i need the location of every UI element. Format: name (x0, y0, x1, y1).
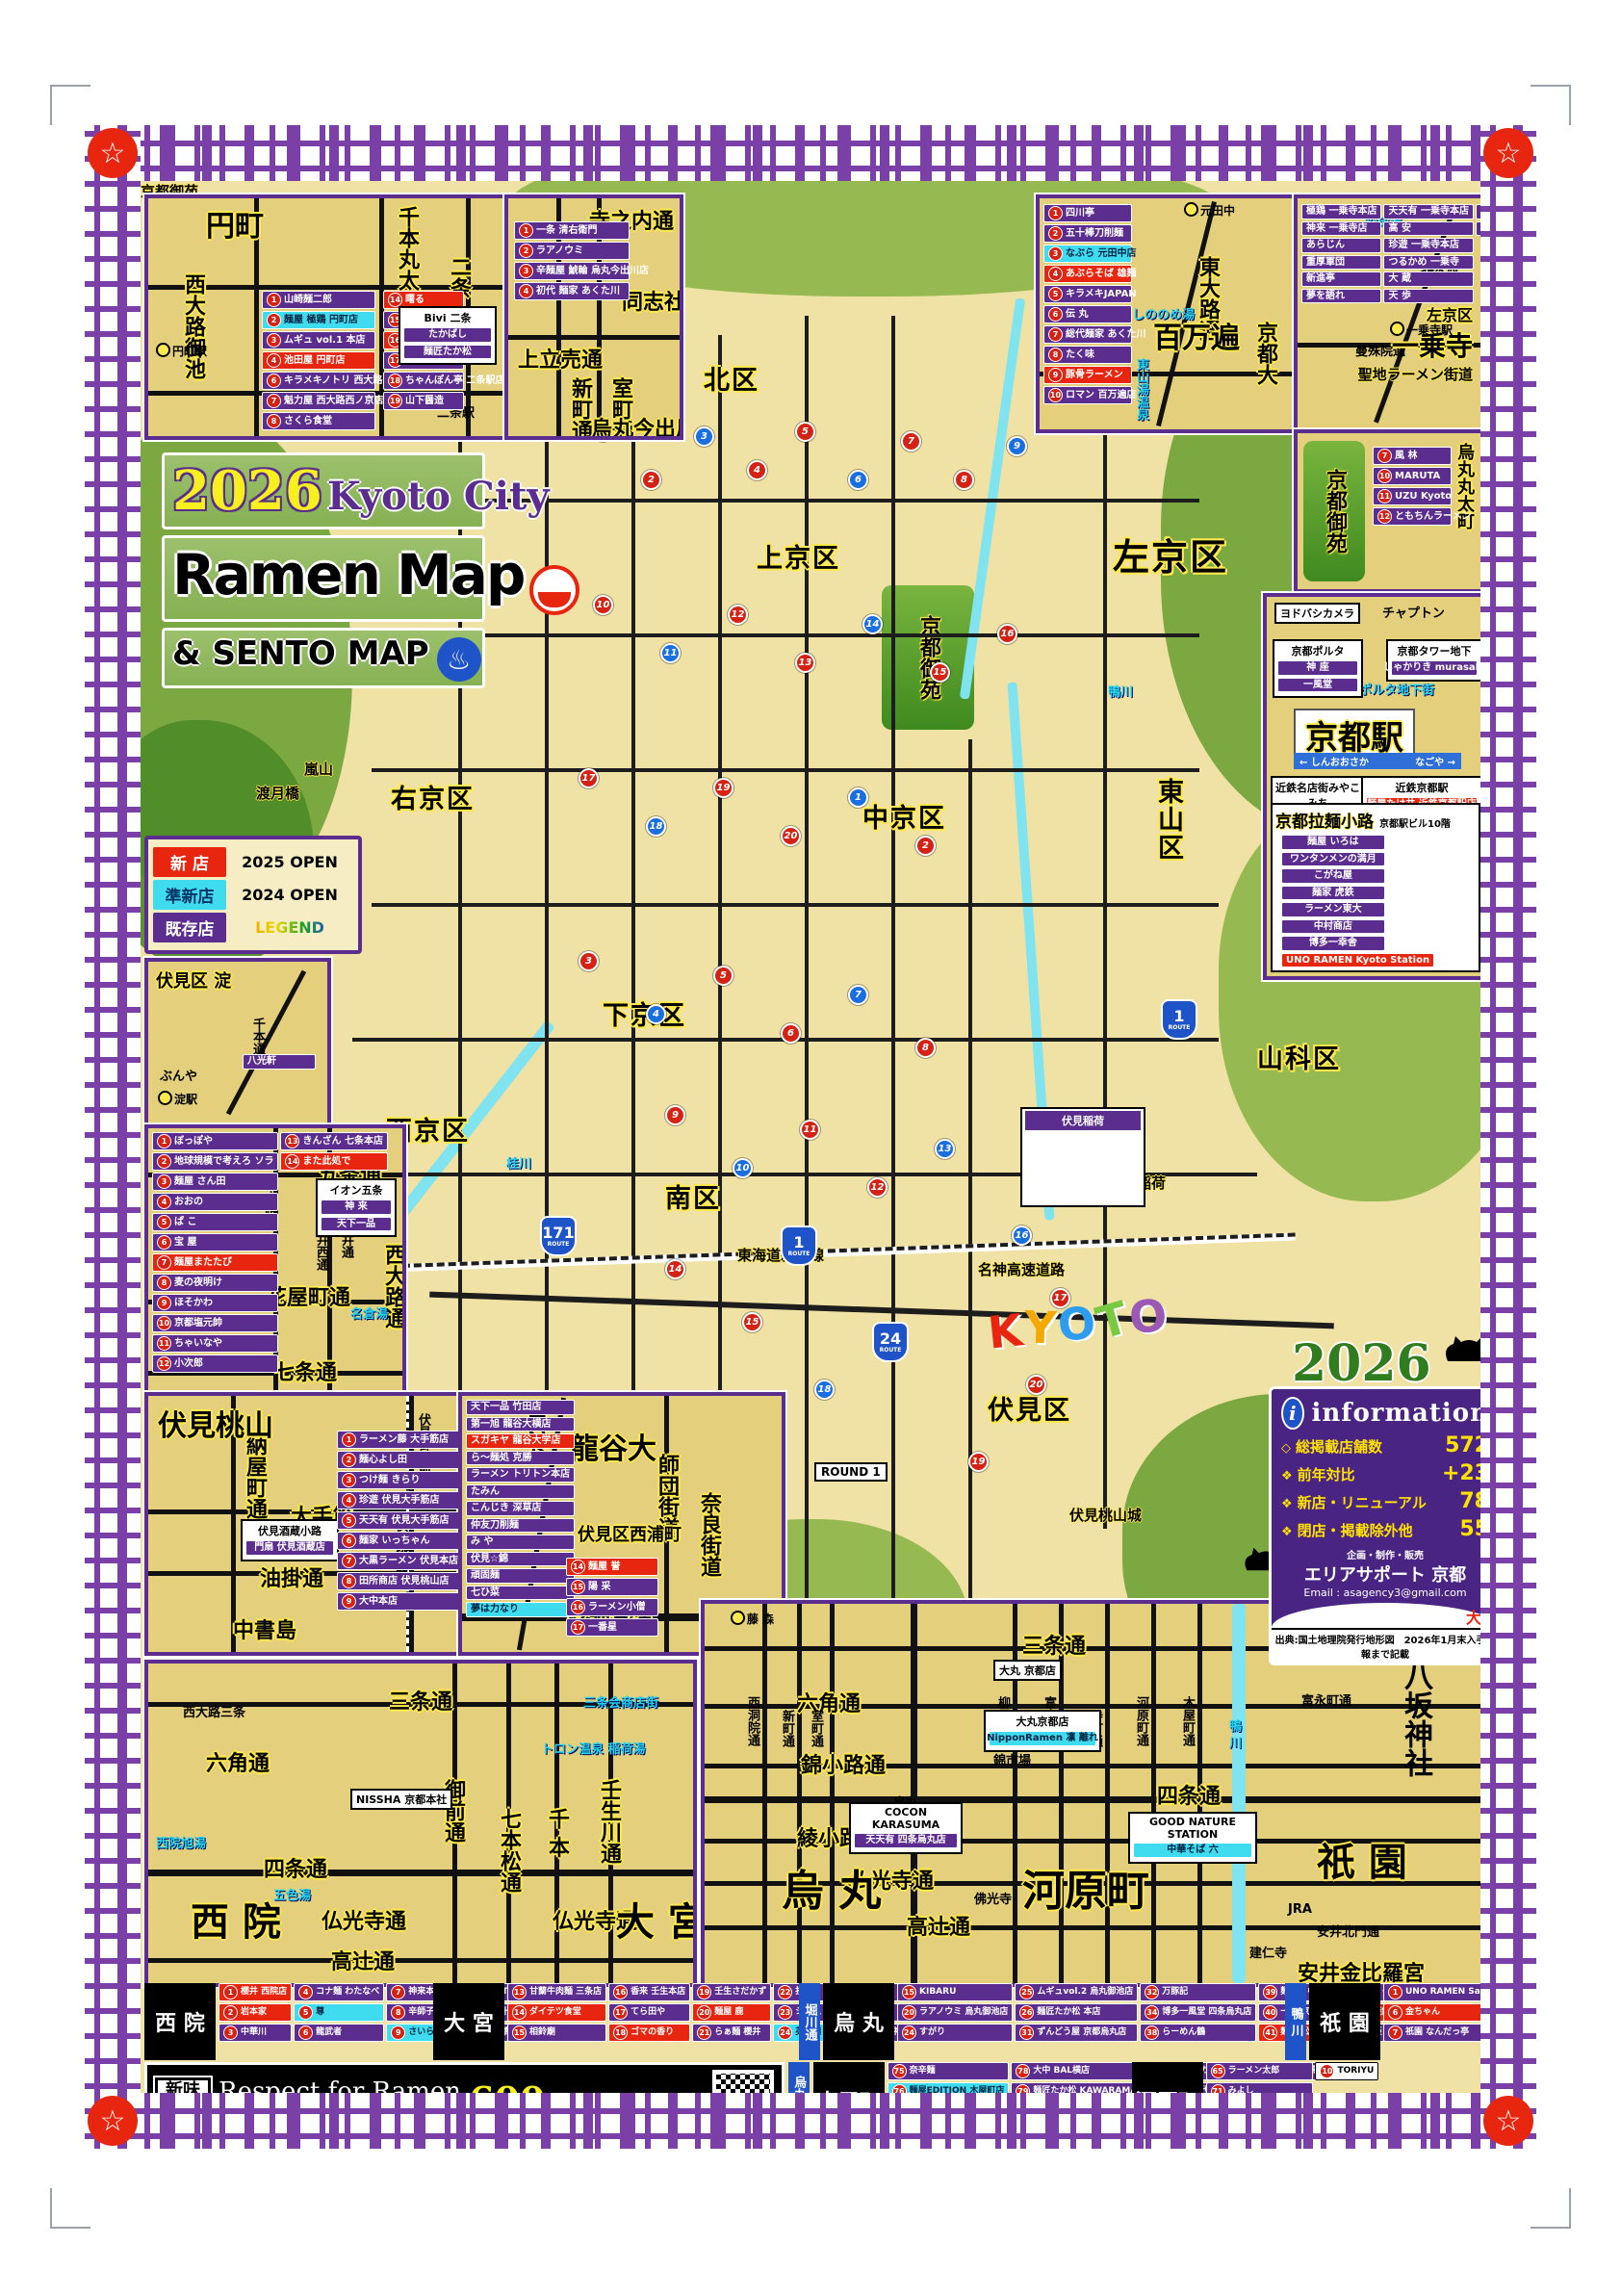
kamigyo-shops: 1一条 清右衛門2ラアノウミ3辛麺屋 鯱輪 烏丸今出川店4初代 麺家 あくた川 (514, 221, 630, 300)
kyoto-ramen-koji-box: 京都拉麺小路京都駅ビル10階 麺屋 いろはワンタンメンの満月こがね屋麺家 虎鉄ラ… (1271, 803, 1480, 972)
shop-chip[interactable]: 2五十棒刀削麺 (1043, 224, 1132, 243)
map-marker[interactable]: 17 (579, 768, 599, 788)
yodo-station: 淀駅 (158, 1091, 197, 1107)
street-label: 高辻通 (907, 1910, 970, 1941)
shop-chip[interactable]: 八光軒 (243, 1054, 316, 1070)
street-label: 安井北門通 (1317, 1922, 1379, 1940)
shop-chip[interactable]: み や (466, 1535, 575, 1550)
street-label: 六角通 (206, 1746, 270, 1777)
kyoto-tower-box: 京都タワー地下 しゃかりき murasaki (1386, 639, 1480, 682)
shop-chip[interactable]: 第一旭 龍谷大横店 (466, 1417, 575, 1432)
shop-chip[interactable]: 19壬生さだかず (692, 1983, 771, 2001)
legend-row-existing: 既存店 LEGEND (153, 913, 353, 942)
shop-chip[interactable]: 3なぶら 元田中店 (1043, 245, 1132, 263)
skyline-deco: 大 (1272, 1603, 1480, 1628)
shop-chip[interactable]: 11UZU Kyoto (1373, 487, 1452, 505)
aeon-gojo-box: イオン五条 神 来天下一品 (316, 1178, 397, 1237)
poster-root: ☆ ☆ ☆ ☆ 京都御苑 北区 (0, 0, 1621, 2296)
shop-chip[interactable]: 2ラアノウミ (514, 242, 630, 260)
kawaramachi-label: 河原町 (1022, 1867, 1149, 1916)
shop-chip[interactable]: 3つけ麺 きらり (337, 1471, 462, 1489)
street-label: 三条通 (1022, 1629, 1086, 1660)
shop-chip[interactable]: 2麺心よし田 (337, 1451, 462, 1469)
shop-chip[interactable]: 14ダイテツ食堂 (507, 2003, 606, 2022)
legend-box: 新 店 2025 OPEN 準新店 2024 OPEN 既存店 LEGEND (144, 836, 362, 954)
banner-slogan: Respect for Ramen (219, 2077, 461, 2094)
street-label: 名倉湯 (350, 1303, 388, 1322)
shop-chip[interactable]: 24すがり (897, 2024, 1013, 2042)
meander-border-top (85, 125, 1536, 181)
shop-chip[interactable]: 2地球規模で考えろ ソラ (152, 1152, 278, 1171)
map-marker[interactable]: 18 (814, 1380, 835, 1400)
shop-chip[interactable]: 15陽 采 (566, 1578, 658, 1596)
shop-chip[interactable]: ら〜麺処 克勝 (466, 1451, 575, 1466)
shop-chip[interactable]: 中村商店 (1281, 919, 1385, 935)
shop-chip[interactable]: 10京都塩元帥 (152, 1314, 278, 1332)
shop-chip[interactable]: 2岩本家 (219, 2003, 292, 2022)
street-label: NISSHA 京都本社 (350, 1789, 452, 1810)
street-label: 佛光寺 (974, 1889, 1012, 1907)
shop-chip[interactable]: 71みよし (1206, 2082, 1314, 2093)
shop-chip[interactable]: 65ラーメン太郎 (1206, 2062, 1314, 2080)
shop-chip[interactable]: 門扇 伏見酒蔵店 (245, 1540, 334, 1556)
shop-chip[interactable]: つるかめ 一乗寺 (1383, 255, 1473, 271)
shop-chip[interactable]: 16ラーメン小僧 (566, 1598, 658, 1616)
cocon-karasuma-box: COCON KARASUMA 天天有 四条烏丸店 (849, 1802, 963, 1854)
shop-chip[interactable]: 18ゴマの香り (608, 2024, 690, 2042)
ryukoku-shops-col1: 天下一品 竹田店第一旭 龍谷大横店スガキヤ 龍谷大学店ら〜麺処 克勝ラーメン ト… (466, 1400, 558, 1648)
shop-chip[interactable]: 3ムギュ vol.1 本店 (262, 331, 375, 349)
street-label: トロン温泉 稲荷湯 (541, 1739, 646, 1757)
shop-chip[interactable]: 7総代麺家 あくた川 (1043, 325, 1132, 344)
map-marker[interactable]: 2 (915, 836, 936, 856)
shop-chip[interactable]: 6麺家 いっちゃん (337, 1532, 462, 1550)
shop-chip[interactable]: 1四川亭 (1043, 204, 1132, 222)
title-row-main: Ramen Map (162, 535, 485, 622)
band-header: 大 宮 (433, 1983, 504, 2060)
shop-chip[interactable]: 1UNO RAMEN Sanjo (1383, 1983, 1480, 2001)
credits: 企画・制作・販売 エリアサポート 京都 Email : asagency3@gm… (1281, 1547, 1480, 1599)
inset-ryukoku: 龍谷大 伏見区西浦町 藤 森 R24師団街道奈良街道名神高速 天下一品 竹田店第… (458, 1392, 785, 1656)
karasuma-street-strip: 烏丸通り (788, 2062, 810, 2093)
map-marker[interactable]: 13 (935, 1139, 955, 1159)
map-marker[interactable]: 11 (800, 1120, 820, 1140)
shop-chip[interactable]: 1一条 清右衛門 (514, 221, 630, 240)
inset-fushimi-momoyama: 伏見桃山 納屋町通大手筋油掛通中書島伏見御陵前駅伏見桃山駅 伏見酒蔵小路 門扇 … (144, 1392, 462, 1656)
inset-hyakumanben: 百万遍 元田中 東大路通京都大しののめ湯東山湯温泉 1四川亭2五十棒刀削麺3なぶ… (1036, 194, 1298, 433)
shop-chip[interactable]: 6金ちゃん (1383, 2003, 1480, 2022)
crop-mark (50, 85, 90, 125)
shop-chip[interactable]: 12小次郎 (152, 1354, 278, 1373)
shop-chip[interactable]: 17てら田や (608, 2003, 690, 2022)
inset-saiin-omiya: 西 院 大 宮 三条通六角通四条通仏光寺通高辻通御前通七本松通千 本壬生川通西大… (144, 1660, 697, 1987)
ichijoji-subtitle: 聖地ラーメン街道 (1358, 366, 1473, 383)
info-title: information (1312, 1399, 1481, 1428)
motodanaka-station: 元田中 (1184, 202, 1235, 219)
shop-chip[interactable]: 1ぼっぽや (152, 1132, 278, 1150)
street-label: 上立売通 (518, 343, 603, 374)
banner-price: 600 (469, 2084, 545, 2093)
shop-chip[interactable]: 七ひ菜 (466, 1586, 575, 1601)
inset-gojo: 五条通花屋町通七条通西小路通佐井西通佐井通西大路通名倉湯 イオン五条 神 来天下… (144, 1124, 406, 1396)
map-marker[interactable]: 3 (694, 426, 714, 447)
shop-chip[interactable]: 天下一品 竹田店 (466, 1400, 575, 1415)
shop-chip[interactable]: 高 安 (1383, 221, 1473, 237)
street-label: 千本通 (248, 1018, 267, 1055)
shop-chip[interactable]: 4あぶらそば 雄麺 (1043, 265, 1132, 283)
shop-chip[interactable]: ワンタンメンの満月 (1281, 852, 1385, 867)
momoyama-shops: 1ラーメン藤 大手筋店2麺心よし田3つけ麺 きらり4珍遊 伏見大手筋店5天天有 … (337, 1431, 450, 1642)
qr-code[interactable] (712, 2070, 774, 2093)
shop-chip[interactable]: 20ラアノウミ 烏丸御池店 (897, 2003, 1013, 2022)
bivi-nijo-box: Bivi 二条 たかばし麺匠たか松 (399, 306, 497, 365)
shop-chip[interactable]: 19山下醤造 (383, 392, 464, 410)
star-badge-icon: ☆ (1483, 2096, 1533, 2146)
sale-banner: 新味発見 Respect for Ramen 高精度・熱烈編集！完全保存版 60… (144, 2062, 785, 2093)
street-label: 建仁寺 (1249, 1943, 1287, 1961)
street-label: 西大路三条 (183, 1702, 245, 1720)
street-label: 納屋町通 (239, 1434, 270, 1519)
title-row-year: 2026 Kyoto City (162, 452, 485, 529)
inset-title: 龍谷大 (570, 1432, 656, 1466)
shop-chip[interactable]: 15相鈴廟 (507, 2024, 606, 2042)
map-marker[interactable]: 12 (867, 1177, 888, 1198)
shop-chip[interactable]: 天下一品 (321, 1217, 392, 1232)
shop-chip[interactable]: 2麺屋 極鶏 円町店 (262, 311, 375, 329)
street-label: 三条会商店街 (583, 1692, 658, 1711)
kamogawa-strip: 鴨 川 (1285, 1983, 1306, 2060)
shop-chip[interactable]: 4池田屋 円町店 (262, 351, 375, 370)
inset-karasuma-imadegawa: 寺之内通上立売通新町通室町通同志社大烏丸今出川 1一条 清右衛門2ラアノウミ3辛… (504, 194, 683, 440)
legend-chip-existing: 既存店 (153, 913, 226, 942)
hyakumanben-shops: 1四川亭2五十棒刀削麺3なぶら 元田中店4あぶらそば 雄麺5キラメキJAPAN6… (1043, 204, 1132, 404)
street-label: チャプトン (1382, 603, 1445, 621)
shop-chip[interactable]: 神 座 (1277, 660, 1358, 676)
map-marker[interactable]: 9 (1007, 436, 1027, 456)
inset-kyoto-station: ヨドバシカメラチャプトンポルタ地下街室町通新町通東寺通大正湯 京都ポルタ 神 座… (1263, 593, 1480, 980)
shop-chip[interactable]: 15KIBARU (897, 1983, 1013, 2001)
shop-chip[interactable]: 13きんざん 七条本店 (280, 1132, 387, 1150)
legend-chip-new: 新 店 (153, 847, 226, 877)
kyoto-porta-box: 京都ポルタ 神 座一風堂 (1273, 639, 1363, 698)
shop-chip[interactable]: 10ロマン 百万遍店 (1043, 386, 1132, 404)
band-header: 西 院 (144, 1983, 216, 2060)
band-header: 祇 園 (1309, 1983, 1380, 2060)
map-marker[interactable]: 8 (915, 1038, 936, 1058)
star-badge-icon: ☆ (88, 128, 138, 178)
shop-chip[interactable]: 夢を語れ (1301, 289, 1381, 304)
shop-chip[interactable]: 麺匠たか松 (403, 345, 492, 360)
shop-chip[interactable]: 7祇園 なんだっ亭 (1383, 2024, 1480, 2042)
map-marker[interactable]: 7 (848, 985, 868, 1005)
shop-chip[interactable]: 天 歩 (1383, 289, 1473, 304)
map-marker[interactable]: 19 (713, 778, 733, 798)
omiya-label: 大 宮 (616, 1900, 697, 1945)
shop-chip[interactable]: 14また此処で (280, 1152, 387, 1171)
fujinomori-station: 藤 森 (731, 1611, 774, 1627)
legend-row-new: 新 店 2025 OPEN (153, 847, 353, 877)
info-row-total: ◇総掲載店舗数572 (1281, 1433, 1480, 1458)
inset-yodo: 伏見区 淀 淀駅 千本通ぶんや 八光軒 (144, 958, 331, 1127)
map-marker[interactable]: 16 (1012, 1225, 1032, 1246)
shop-chip[interactable]: 25ムギュvol.2 烏丸御池店 (1015, 1983, 1138, 2001)
shop-chip[interactable]: 20麺屋 鹿 (692, 2003, 771, 2022)
street-label: JRA (1288, 1902, 1312, 1917)
map-marker[interactable]: 18 (646, 816, 666, 837)
shop-chip[interactable]: あらじん (1301, 238, 1381, 253)
shop-chip[interactable]: 34博多一風堂 四条烏丸店 (1140, 2003, 1256, 2022)
shop-chip[interactable]: 4コナ麺 わたなべ (294, 1983, 384, 2001)
title-main: Ramen Map (172, 542, 524, 607)
legend-chip-seminew: 準新店 (153, 880, 226, 910)
horikawa-street-strip: 堀川通 (799, 1983, 820, 2060)
street-label: 河原町通 (1132, 1696, 1150, 1746)
map-marker[interactable]: 6 (848, 470, 868, 490)
deco-year: 2026 (1292, 1334, 1431, 1393)
shop-chip[interactable]: 6龍武者 (294, 2024, 384, 2042)
inset-title: 円町 (206, 210, 264, 244)
shop-chip[interactable]: 21らぁ麺 櫻井 (692, 2024, 771, 2042)
ramen-bowl-icon (529, 565, 579, 615)
shop-chip[interactable]: 驚麺屋 (1476, 221, 1480, 237)
shop-chip[interactable]: 38らーめん鶴 (1140, 2024, 1256, 2042)
map-marker[interactable]: 15 (742, 1312, 762, 1332)
marutamachi-shops: 7風 林10MARUTA11UZU Kyoto12ともちんラーメン (1373, 447, 1452, 526)
street-label: 四条通 (264, 1852, 327, 1883)
street-label: 西大路御池 (177, 273, 208, 379)
shop-chip[interactable]: 天天有 一乗寺本店 (1383, 204, 1473, 219)
shop-chip[interactable]: 仲友刀削麺 (466, 1518, 575, 1534)
shop-chip[interactable]: 18ちゃんぽん亭 二条駅店 (383, 372, 464, 390)
map-marker[interactable]: 3 (579, 951, 599, 971)
street-label: 室町通 (807, 1710, 825, 1747)
street-label: 奈良街道 (693, 1492, 724, 1577)
inset-enmachi: 円町 円町駅 西大路御池千本丸太町二条二条駅 1山崎麺二郎2麺屋 極鶏 円町店3… (144, 194, 506, 440)
shop-chip[interactable]: 麺屋 いろは (1281, 835, 1385, 850)
shop-chip[interactable]: 5尊 (294, 2003, 384, 2022)
shop-chip[interactable]: たかばし (403, 327, 492, 343)
shop-chip[interactable]: 博多一幸舎 (1281, 936, 1385, 951)
shop-chip[interactable]: 6宝 屋 (152, 1233, 278, 1251)
map-marker[interactable]: 4 (747, 460, 767, 480)
map-marker[interactable]: 8 (954, 470, 974, 490)
map-marker[interactable]: 2 (641, 470, 661, 490)
street-label: 木屋町通 (1178, 1696, 1196, 1746)
info-box: i information ◇総掲載店舗数572 ❖前年対比+23 ❖新店・リニ… (1269, 1386, 1480, 1665)
shop-chip[interactable]: 10TORIYU (1315, 2062, 1378, 2080)
shop-chip[interactable]: スガキヤ 龍谷大学店 (466, 1433, 575, 1449)
shop-chip[interactable]: 16香来 壬生本店 (608, 1983, 690, 2001)
title-year: 2026 (172, 459, 322, 523)
band-col-saiin: 西 院 1櫻井 西院店2岩本家3中華川4コナ麺 わたなべ5尊6龍武者7神来本店8… (144, 1983, 430, 2060)
street-label: 同志社大 (622, 285, 683, 316)
street-label: 大丸 京都店 (993, 1660, 1062, 1681)
shop-chip[interactable]: NipponRamen 凛 離れ (989, 1731, 1096, 1746)
shop-chip[interactable]: ラーメン トリトン本店 (466, 1467, 575, 1483)
shop-chip[interactable]: 大 蔵 (1383, 271, 1473, 287)
shop-chip[interactable]: 4おおの (152, 1193, 278, 1211)
arrow-icon: » (547, 2084, 565, 2094)
map-marker[interactable]: 14 (665, 1259, 685, 1279)
ryukoku-shops-col2: 14麺屋 誉15陽 采16ラーメン小僧17一番星 (566, 1558, 658, 1637)
map-marker[interactable]: 4 (646, 1004, 666, 1024)
title-city: Kyoto City (327, 474, 550, 519)
shop-chip[interactable]: 17一番星 (566, 1618, 658, 1637)
street-label: 仏光寺通 (322, 1904, 406, 1935)
map-marker[interactable]: 6 (781, 1023, 801, 1044)
shop-chip[interactable]: 7風 林 (1373, 447, 1452, 465)
meander-border-bottom (85, 2093, 1536, 2149)
shop-chip[interactable]: 神 来 (321, 1200, 392, 1215)
shop-chip[interactable]: 9ほそかわ (152, 1294, 278, 1312)
shop-chip[interactable]: 9大中本店 (337, 1592, 462, 1611)
info-row-new: ❖新店・リニューアル78 (1281, 1489, 1480, 1513)
shop-chip[interactable]: 1ラーメン藤 大手筋店 (337, 1431, 462, 1449)
shop-chip[interactable]: 4珍遊 伏見大手筋店 (337, 1491, 462, 1509)
shop-chip[interactable]: 13甘蘭牛肉麺 三条店 (507, 1983, 606, 2001)
map-marker[interactable]: 10 (733, 1158, 753, 1178)
shop-chip[interactable]: 1山崎麺二郎 (262, 291, 375, 309)
shop-chip[interactable]: 10MARUTA (1373, 467, 1452, 485)
map-marker[interactable]: 14 (862, 614, 883, 634)
shop-chip[interactable]: ビスカ (1476, 204, 1480, 219)
shop-chip[interactable]: 8たく味 (1043, 346, 1132, 364)
street-label: 鴨 川 (1224, 1719, 1243, 1749)
legend-row-seminew: 準新店 2024 OPEN (153, 880, 353, 910)
street-label: ぶんや (160, 1066, 197, 1084)
inset-ichijoji: 左京区 一乗寺 聖地ラーメン街道 一乗寺駅 曼殊院通鈴成湯北泉通 極鶏 一乗寺本… (1294, 194, 1480, 433)
onsen-icon: ♨ (437, 637, 481, 682)
map-marker[interactable]: 10 (593, 595, 613, 615)
street-label: 千 本 (541, 1808, 572, 1858)
band-col-kawaramachi: 河原町 65ラーメン太郎71みよし72ずんどう屋 河原町店10TORIYU (1132, 2062, 1447, 2093)
sakagura-koji-box: 伏見酒蔵小路 門扇 伏見酒蔵店 (241, 1519, 339, 1561)
shop-chip[interactable]: 31ずんどう屋 京都烏丸店 (1015, 2024, 1138, 2042)
inset-karasuma-marutamachi: 烏丸丸太町 京都御苑 7風 林10MARUTA11UZU Kyoto12ともちん… (1294, 429, 1480, 593)
shop-index-band: 西 院 1櫻井 西院店2岩本家3中華川4コナ麺 わたなべ5尊6龍武者7神来本店8… (144, 1983, 1479, 2060)
shop-chip[interactable]: 3麺屋 さん田 (152, 1173, 278, 1191)
shop-chip[interactable]: 新進亭 (1301, 271, 1381, 287)
shop-chip[interactable]: 一風堂 (1277, 678, 1358, 693)
shop-chip[interactable]: 8さくら食堂 (262, 412, 375, 430)
shop-chip[interactable]: 頑固麺 (466, 1568, 575, 1584)
map-marker[interactable]: 13 (795, 653, 815, 673)
map-marker[interactable]: 12 (728, 605, 748, 625)
shop-chip[interactable]: 4初代 麺家 あくた川 (514, 282, 630, 300)
shop-chip[interactable]: 7大黒ラーメン 伏見本店 (337, 1552, 462, 1570)
street-label: 花屋町通 (266, 1280, 350, 1311)
street-label: 七条通 (273, 1355, 337, 1386)
street-label: 三条通 (389, 1685, 452, 1716)
street-label: 高辻通 (331, 1945, 395, 1975)
shop-chip[interactable]: 6伝 丸 (1043, 305, 1132, 323)
shop-chip[interactable]: 5ぱ こ (152, 1213, 278, 1231)
street-label: 四条通 (1157, 1779, 1221, 1810)
street-label: ヨドバシカメラ (1274, 603, 1360, 624)
shop-chip[interactable]: 3中華川 (219, 2024, 292, 2042)
shop-chip[interactable]: 32万豚記 (1140, 1983, 1256, 2001)
shop-chip[interactable]: 6キラメキノトリ 西大路円町店 (262, 372, 375, 390)
shop-chip[interactable]: 極鶏 一乗寺本店 (1301, 204, 1381, 219)
band-header: 烏 丸 (823, 1983, 894, 2060)
shop-chip[interactable]: 14麺屋 誉 (566, 1558, 658, 1576)
map-marker[interactable]: 7 (901, 431, 921, 451)
inset-fushimi-inari: 伏見稲荷 (1020, 1107, 1145, 1207)
map-marker[interactable]: 9 (665, 1105, 685, 1125)
shop-chip[interactable]: 11ちゃいなや (152, 1334, 278, 1353)
gion-label: 祇 園 (1317, 1841, 1407, 1885)
map-marker[interactable]: 16 (997, 624, 1017, 644)
crop-mark (1531, 2188, 1571, 2229)
shop-chip[interactable]: 12ともちんラーメン (1373, 507, 1452, 526)
shop-chip[interactable]: 7魁力屋 西大路西ノ京店 (262, 392, 375, 410)
shop-chip[interactable]: こがね屋 (1281, 868, 1385, 884)
banner-sale-text: NOW ON SALE (574, 2091, 705, 2093)
shop-chip[interactable]: 天天有 四条烏丸店 (854, 1833, 958, 1848)
map-marker[interactable]: 5 (713, 966, 733, 986)
map-marker[interactable]: 11 (660, 643, 681, 663)
gojo-shops: 1ぼっぽや2地球規模で考えろ ソラ3麺屋 さん田4おおの5ぱ こ6宝 屋7麺屋ま… (152, 1132, 252, 1390)
info-row-closed: ❖閉店・掲載除外他55 (1281, 1517, 1480, 1541)
street-label: 烏丸今出川 (591, 412, 683, 440)
shop-chip[interactable]: 75奈辛麺 (888, 2062, 1010, 2080)
shop-chip[interactable]: たみん (466, 1484, 575, 1500)
shop-chip[interactable]: こんじき 深草店 (466, 1501, 575, 1516)
yasaka-shrine-label: 八坂神社 (1399, 1662, 1432, 1777)
map-marker[interactable]: 20 (781, 826, 801, 846)
contact-email[interactable]: Email : asagency3@gmail.com (1281, 1587, 1480, 1599)
map-marker[interactable]: 5 (795, 422, 815, 442)
meander-border-left (85, 125, 141, 2149)
map-marker[interactable]: 20 (1026, 1375, 1046, 1395)
shop-chip[interactable]: 8麦の夜明け (152, 1274, 278, 1292)
map-marker[interactable]: 1 (848, 787, 868, 808)
shop-chip[interactable]: 7麺屋またたび (152, 1253, 278, 1272)
shop-chip[interactable]: UNO RAMEN Kyoto Station (1281, 953, 1434, 968)
shop-chip[interactable]: 5キラメキJAPAN (1043, 285, 1132, 303)
shop-chip[interactable]: しゃかりき murasaki (1391, 660, 1478, 676)
shop-chip[interactable]: 夢は力なり (466, 1602, 575, 1617)
shop-chip[interactable]: 神来 一乗寺店 (1301, 221, 1381, 237)
shop-chip[interactable]: ラーメン東大 (1281, 902, 1385, 917)
street-label: 富永町通 (1301, 1690, 1351, 1709)
shop-chip[interactable]: 1櫻井 西院店 (219, 1983, 292, 2001)
map-marker[interactable]: 19 (968, 1452, 989, 1472)
map-marker[interactable]: 15 (930, 662, 950, 683)
shop-chip[interactable]: 76麺屋EDITION 木屋町店 (888, 2082, 1010, 2093)
shop-chip[interactable]: 重厚軍団 (1301, 255, 1381, 271)
band-col-karasuma: 烏 丸 15KIBARU20ラアノウミ 烏丸御池店24すがり25ムギュvol.2… (823, 1983, 1282, 2060)
street-label: 錦市場 (993, 1750, 1031, 1768)
ichijoji-shops: 極鶏 一乗寺本店神来 一乗寺店あらじん重厚軍団新進亭夢を語れ天天有 一乗寺本店高… (1301, 204, 1382, 320)
title-block: 2026 Kyoto City Ramen Map & SENTO MAP♨ (162, 452, 485, 694)
band-col-omiya: 大 宮 13甘蘭牛肉麺 三条店14ダイテツ食堂15相鈴廟16香来 壬生本店17て… (433, 1983, 796, 2060)
shop-chip[interactable]: 5天天有 伏見大手筋店 (337, 1511, 462, 1530)
shop-chip[interactable]: 珍遊 一乗寺本店 (1383, 238, 1473, 253)
band-col-kiyamachi: 木屋町 75奈辛麺76麺屋EDITION 木屋町店77大豊 木屋町店78大中 B… (813, 2062, 1128, 2093)
saiin-label: 西 院 (191, 1900, 281, 1945)
shop-chip[interactable]: 9豚骨ラーメン (1043, 366, 1132, 384)
shop-chip[interactable]: 中華そば 六 (1133, 1843, 1252, 1858)
source-note: 出典:国土地理院発行地形図 2026年1月末入手情報まで記載 (1272, 1628, 1480, 1663)
shop-chip[interactable]: 3辛麺屋 鯱輪 烏丸今出川店 (514, 262, 630, 280)
shop-chip[interactable]: 麺家 虎鉄 (1281, 886, 1385, 901)
street-label: 西院旭湯 (156, 1833, 206, 1851)
shop-chip[interactable]: 26麺匠たか松 本店 (1015, 2003, 1138, 2022)
shop-chip[interactable]: 伏見☆錦 (466, 1552, 575, 1567)
shop-chip[interactable]: 8田所商店 伏見桃山店 (337, 1572, 462, 1590)
daimaru-box: 大丸京都店 NipponRamen 凛 離れ (984, 1710, 1101, 1752)
